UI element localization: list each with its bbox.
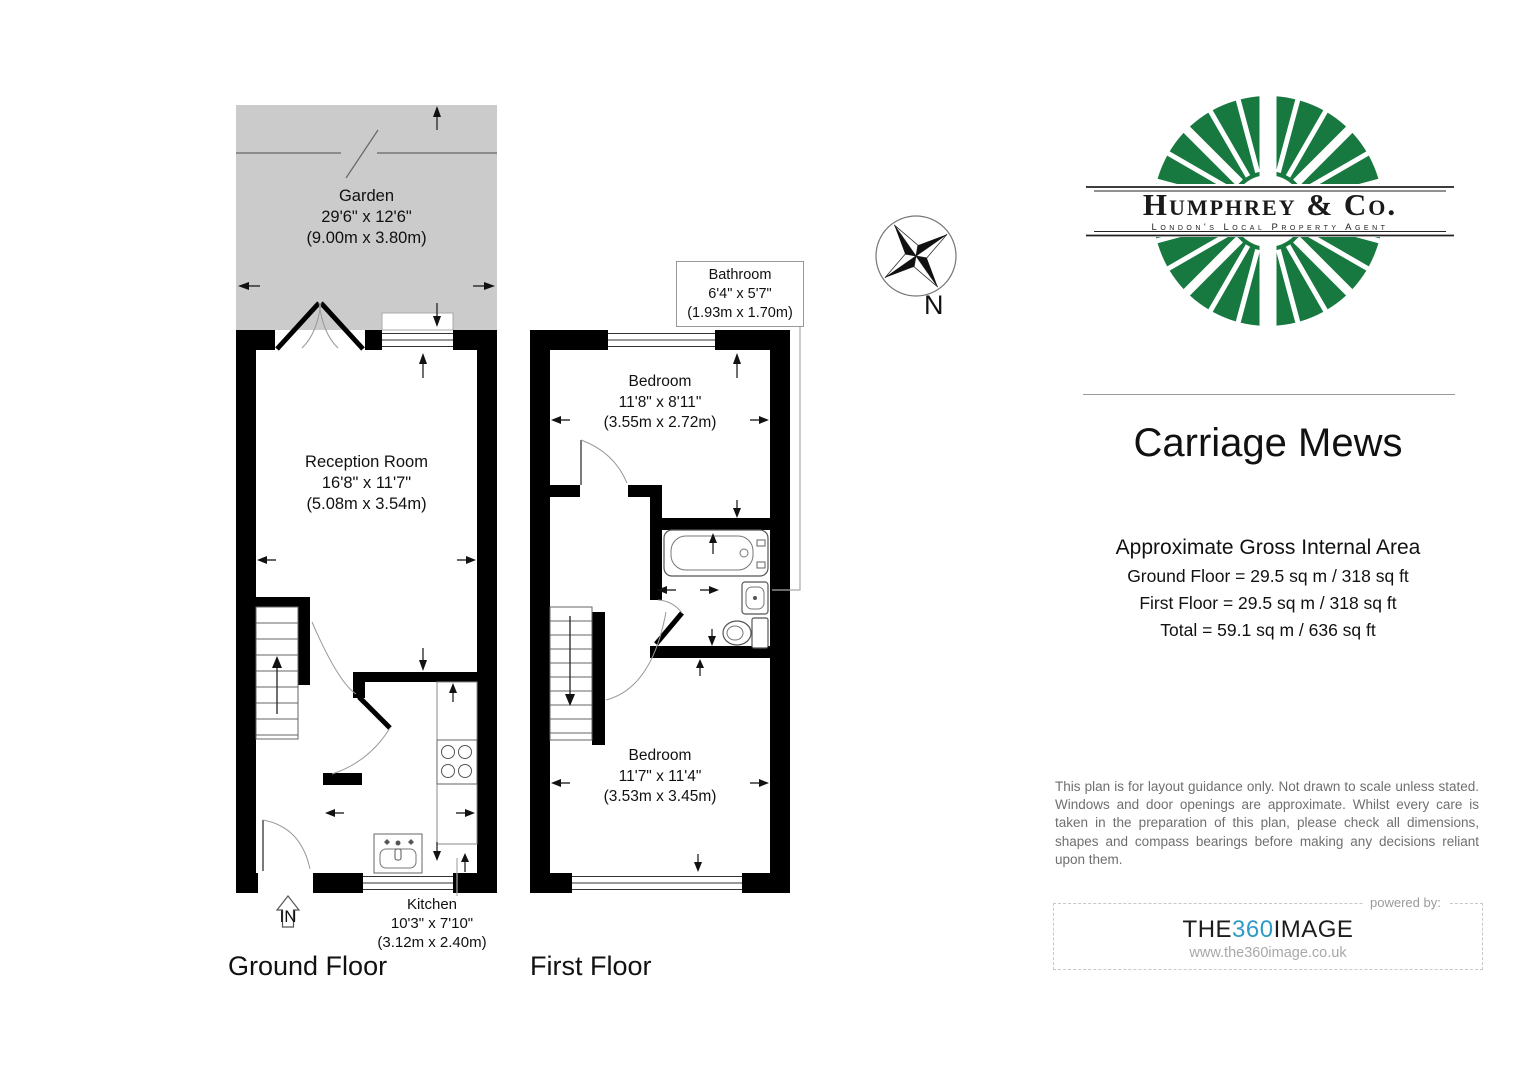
first-floor-label: First Floor (530, 951, 652, 982)
the360image-website: www.the360image.co.uk (1054, 945, 1482, 961)
powered-by-box: THE360IMAGE www.the360image.co.uk (1053, 903, 1483, 970)
room-name: Bathroom (677, 266, 803, 285)
area-line-ground: Ground Floor = 29.5 sq m / 318 sq ft (1050, 566, 1486, 587)
staircase-first (550, 607, 592, 740)
kitchen-fixtures (374, 682, 477, 873)
reception-room-label: Reception Room 16'8" x 11'7" (5.08m x 3.… (256, 452, 477, 515)
disclaimer-text: This plan is for layout guidance only. N… (1055, 778, 1479, 869)
room-name: Kitchen (352, 895, 512, 914)
room-dims-imperial: 10'3" x 7'10" (352, 914, 512, 933)
interior-doors-ground (312, 622, 390, 774)
room-name: Reception Room (256, 452, 477, 473)
compass-rose-icon (876, 216, 956, 296)
hob (437, 740, 477, 784)
entrance-door (263, 820, 310, 871)
property-title: Carriage Mews (1050, 420, 1486, 466)
bedroom-front-label: Bedroom 11'8" x 8'11" (3.55m x 2.72m) (550, 372, 770, 434)
room-name: Bedroom (550, 746, 770, 767)
room-dims-metric: (3.55m x 2.72m) (550, 413, 770, 434)
toilet (723, 618, 768, 648)
kitchen-sink (374, 834, 422, 873)
area-heading: Approximate Gross Internal Area (1050, 536, 1486, 560)
area-line-total: Total = 59.1 sq m / 636 sq ft (1050, 620, 1486, 641)
ground-floor-label: Ground Floor (228, 951, 387, 982)
room-dims-imperial: 29'6" x 12'6" (236, 207, 497, 228)
room-dims-imperial: 16'8" x 11'7" (256, 473, 477, 494)
bedroom-back-label: Bedroom 11'7" x 11'4" (3.53m x 3.45m) (550, 746, 770, 808)
bathroom-callout: Bathroom 6'4" x 5'7" (1.93m x 1.70m) (676, 261, 804, 327)
floorplan-page: { "colors": { "logo_green": "#17793f", "… (0, 0, 1528, 1080)
agency-name: Humphrey & Co. (1085, 188, 1455, 221)
the360image-suffix: IMAGE (1274, 916, 1354, 943)
room-name: Garden (236, 186, 497, 207)
room-dims-imperial: 11'7" x 11'4" (550, 767, 770, 788)
garden-label: Garden 29'6" x 12'6" (9.00m x 3.80m) (236, 186, 497, 249)
room-dims-metric: (9.00m x 3.80m) (236, 228, 497, 249)
room-dims-metric: (1.93m x 1.70m) (677, 304, 803, 323)
room-name: Bedroom (550, 372, 770, 393)
room-dims-metric: (3.12m x 2.40m) (352, 933, 512, 952)
room-dims-metric: (3.53m x 3.45m) (550, 787, 770, 808)
area-line-first: First Floor = 29.5 sq m / 318 sq ft (1050, 593, 1486, 614)
room-dims-imperial: 6'4" x 5'7" (677, 285, 803, 304)
the360image-360: 360 (1232, 916, 1274, 943)
divider-line (1083, 394, 1455, 395)
room-dims-imperial: 11'8" x 8'11" (550, 393, 770, 414)
the360image-logo: THE360IMAGE (1054, 916, 1482, 944)
powered-by-label: powered by: (1363, 895, 1448, 910)
the360image-prefix: THE (1183, 916, 1233, 943)
room-dims-metric: (5.08m x 3.54m) (256, 494, 477, 515)
kitchen-label: Kitchen 10'3" x 7'10" (3.12m x 2.40m) (352, 895, 512, 952)
entrance-in-label: IN (268, 907, 308, 927)
window-sill (382, 313, 453, 330)
compass-north-label: N (924, 290, 944, 321)
bathtub (664, 530, 768, 576)
agency-tagline: London's Local Property Agent (1085, 222, 1455, 233)
basin (742, 582, 768, 614)
